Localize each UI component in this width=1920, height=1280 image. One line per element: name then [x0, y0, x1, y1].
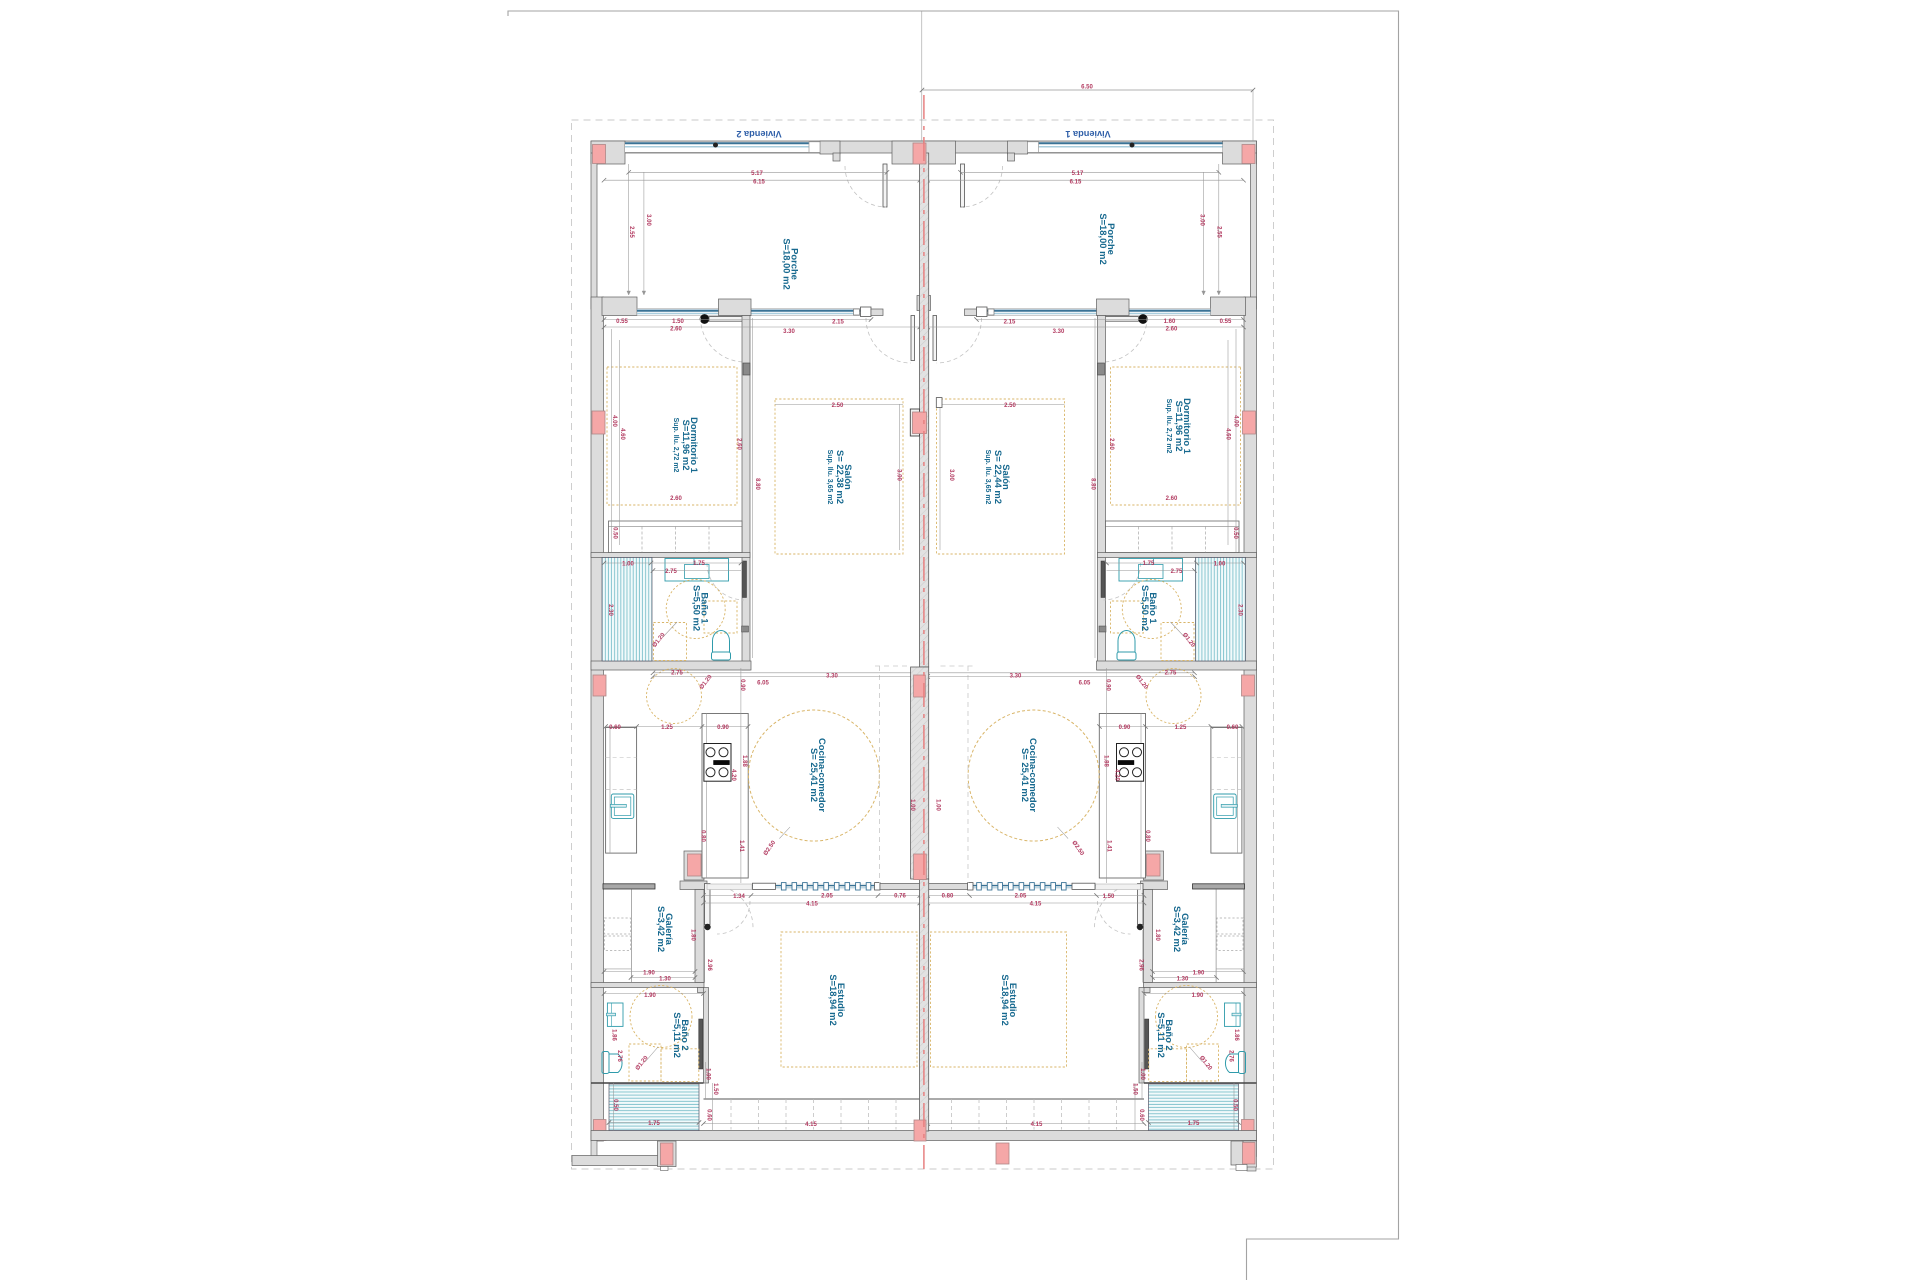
svg-text:0.80: 0.80	[700, 830, 706, 842]
svg-text:4.15: 4.15	[806, 901, 818, 907]
svg-text:S= 22,44 m2: S= 22,44 m2	[993, 450, 1004, 504]
svg-text:S=5,50 m2: S=5,50 m2	[1140, 585, 1151, 631]
svg-text:2.75: 2.75	[1171, 569, 1183, 575]
svg-text:1.41: 1.41	[738, 840, 744, 852]
svg-text:2.05: 2.05	[1015, 893, 1027, 899]
svg-text:0.80: 0.80	[1144, 830, 1150, 842]
svg-text:1.41: 1.41	[1106, 840, 1112, 852]
svg-text:4.20: 4.20	[1114, 769, 1120, 781]
svg-text:S=3,42 m2: S=3,42 m2	[1172, 906, 1183, 952]
svg-text:1.00: 1.00	[1139, 1068, 1145, 1080]
svg-text:S=18,00 m2: S=18,00 m2	[1098, 213, 1109, 264]
svg-text:1.75: 1.75	[1143, 561, 1155, 567]
svg-text:1.75: 1.75	[693, 561, 705, 567]
svg-text:S= 22,38 m2: S= 22,38 m2	[835, 450, 846, 504]
svg-text:0.60: 0.60	[609, 725, 621, 731]
svg-text:3.00: 3.00	[896, 469, 902, 481]
svg-text:2.75: 2.75	[1165, 670, 1177, 676]
svg-text:S=5,11 m2: S=5,11 m2	[1156, 1012, 1167, 1058]
svg-text:1.00: 1.00	[705, 1068, 711, 1080]
svg-text:Sup. Ilu. 3,65 m2: Sup. Ilu. 3,65 m2	[984, 450, 991, 505]
svg-text:2.60: 2.60	[1166, 326, 1178, 332]
svg-text:1.90: 1.90	[1193, 970, 1205, 976]
svg-text:S= 25,41 m2: S= 25,41 m2	[809, 748, 820, 802]
svg-text:2.05: 2.05	[821, 893, 833, 899]
svg-text:1.75: 1.75	[1188, 1121, 1200, 1127]
svg-text:S= 25,41 m2: S= 25,41 m2	[1020, 748, 1031, 802]
svg-text:6.05: 6.05	[1079, 680, 1091, 686]
svg-text:0.60: 0.60	[1138, 1109, 1144, 1121]
svg-text:0.60: 0.60	[706, 1109, 712, 1121]
svg-text:4.60: 4.60	[619, 428, 625, 440]
svg-text:2.76: 2.76	[616, 1050, 622, 1062]
svg-text:1.34: 1.34	[733, 894, 745, 900]
svg-text:0.76: 0.76	[894, 893, 906, 899]
svg-text:5.17: 5.17	[751, 171, 763, 177]
svg-text:Sup. Ilu. 3,65 m2: Sup. Ilu. 3,65 m2	[826, 450, 833, 505]
svg-text:1.25: 1.25	[661, 725, 673, 731]
svg-text:4.20: 4.20	[730, 769, 736, 781]
svg-text:1.90: 1.90	[1192, 993, 1204, 999]
svg-text:1.75: 1.75	[648, 1121, 660, 1127]
svg-text:2.15: 2.15	[1004, 319, 1016, 325]
svg-text:1.80: 1.80	[690, 929, 696, 941]
svg-text:2.75: 2.75	[665, 569, 677, 575]
svg-text:2.30: 2.30	[607, 604, 613, 616]
svg-text:2.15: 2.15	[832, 319, 844, 325]
svg-text:2.75: 2.75	[671, 670, 683, 676]
svg-text:1.50: 1.50	[672, 319, 684, 325]
svg-text:2.76: 2.76	[1228, 1050, 1234, 1062]
svg-text:0.60: 0.60	[1227, 725, 1239, 731]
svg-text:S=3,42 m2: S=3,42 m2	[656, 906, 667, 952]
svg-text:2.60: 2.60	[1166, 496, 1178, 502]
svg-text:3.30: 3.30	[1053, 329, 1065, 335]
svg-text:1.90: 1.90	[644, 993, 656, 999]
svg-text:S=5,50 m2: S=5,50 m2	[692, 585, 703, 631]
svg-text:Sup. Ilu. 2,72 m2: Sup. Ilu. 2,72 m2	[1165, 399, 1172, 454]
svg-text:2.96: 2.96	[1138, 959, 1144, 971]
svg-text:1.50: 1.50	[1132, 1083, 1138, 1095]
svg-text:8.80: 8.80	[754, 478, 760, 490]
svg-text:1.30: 1.30	[1177, 976, 1189, 982]
svg-text:Vivienda 2: Vivienda 2	[736, 129, 781, 139]
svg-text:1.50: 1.50	[1103, 894, 1115, 900]
svg-text:2.60: 2.60	[670, 326, 682, 332]
svg-text:3.00: 3.00	[1199, 214, 1205, 226]
svg-text:2.50: 2.50	[1004, 403, 1016, 409]
svg-text:1.90: 1.90	[643, 970, 655, 976]
svg-text:0.80: 0.80	[942, 893, 954, 899]
svg-text:2.55: 2.55	[1216, 226, 1222, 238]
svg-text:0.55: 0.55	[616, 319, 628, 325]
svg-text:0.90: 0.90	[1105, 679, 1111, 691]
svg-text:3.30: 3.30	[826, 673, 838, 679]
svg-text:1.00: 1.00	[935, 799, 941, 811]
svg-text:6.50: 6.50	[1081, 84, 1093, 90]
svg-text:1.86: 1.86	[611, 1029, 617, 1041]
svg-text:3.30: 3.30	[1010, 673, 1022, 679]
svg-text:1.30: 1.30	[659, 976, 671, 982]
svg-text:1.00: 1.00	[909, 799, 915, 811]
svg-text:4.15: 4.15	[1031, 1122, 1043, 1128]
svg-text:4.15: 4.15	[1030, 901, 1042, 907]
svg-text:6.15: 6.15	[1070, 179, 1082, 185]
svg-text:Sup. Ilu. 2,72 m2: Sup. Ilu. 2,72 m2	[672, 418, 679, 473]
svg-text:8.80: 8.80	[1090, 478, 1096, 490]
svg-text:0.90: 0.90	[717, 725, 729, 731]
svg-text:S=11,96 m2: S=11,96 m2	[681, 420, 692, 471]
svg-text:6.15: 6.15	[753, 179, 765, 185]
svg-text:1.88: 1.88	[1103, 755, 1109, 767]
svg-text:0.90: 0.90	[739, 679, 745, 691]
svg-text:0.50: 0.50	[612, 527, 618, 539]
svg-text:2.55: 2.55	[628, 226, 634, 238]
svg-text:1.25: 1.25	[1175, 725, 1187, 731]
svg-text:1.60: 1.60	[1164, 319, 1176, 325]
svg-text:1.86: 1.86	[1233, 1029, 1239, 1041]
svg-text:2.50: 2.50	[832, 403, 844, 409]
svg-text:4.60: 4.60	[1225, 428, 1231, 440]
svg-text:0.50: 0.50	[1232, 527, 1238, 539]
svg-text:4.00: 4.00	[611, 415, 617, 427]
svg-text:0.50: 0.50	[1232, 1099, 1238, 1111]
svg-text:0.55: 0.55	[1220, 319, 1232, 325]
svg-text:6.05: 6.05	[757, 680, 769, 686]
svg-text:1.00: 1.00	[1214, 561, 1226, 567]
svg-text:3.30: 3.30	[783, 329, 795, 335]
svg-text:1.88: 1.88	[741, 755, 747, 767]
svg-text:Vivienda 1: Vivienda 1	[1065, 129, 1110, 139]
svg-text:0.90: 0.90	[1119, 725, 1131, 731]
svg-text:2.60: 2.60	[736, 438, 742, 450]
svg-text:S=11,96 m2: S=11,96 m2	[1174, 401, 1185, 452]
svg-text:S=18,94 m2: S=18,94 m2	[828, 974, 839, 1025]
svg-text:2.96: 2.96	[706, 959, 712, 971]
svg-text:3.00: 3.00	[948, 469, 954, 481]
svg-text:2.30: 2.30	[1237, 604, 1243, 616]
svg-text:2.60: 2.60	[670, 496, 682, 502]
svg-text:S=18,00 m2: S=18,00 m2	[782, 238, 793, 289]
svg-text:2.60: 2.60	[1108, 438, 1114, 450]
svg-text:1.80: 1.80	[1154, 929, 1160, 941]
svg-text:1.50: 1.50	[712, 1083, 718, 1095]
svg-text:0.50: 0.50	[612, 1099, 618, 1111]
svg-text:3.00: 3.00	[645, 214, 651, 226]
svg-text:5.17: 5.17	[1072, 171, 1084, 177]
svg-text:1.00: 1.00	[622, 561, 634, 567]
svg-text:S=5,11 m2: S=5,11 m2	[672, 1012, 683, 1058]
svg-text:S=18,94 m2: S=18,94 m2	[1000, 974, 1011, 1025]
svg-text:4.00: 4.00	[1233, 415, 1239, 427]
svg-text:4.15: 4.15	[805, 1122, 817, 1128]
